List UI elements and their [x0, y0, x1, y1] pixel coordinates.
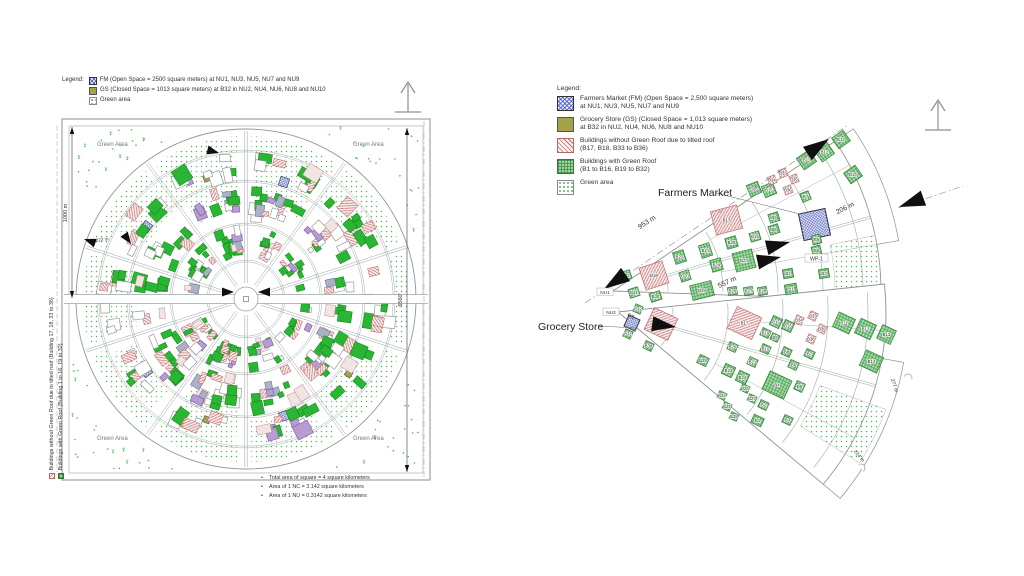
north-arrow-icon	[925, 100, 951, 130]
center-hub	[234, 287, 258, 311]
dim-arrow-large	[896, 191, 926, 215]
building-label: B27	[748, 396, 756, 401]
green-dot	[394, 158, 396, 160]
green-dot	[107, 448, 109, 450]
green-dot	[414, 462, 416, 464]
building-label: B21	[749, 360, 757, 365]
dim-break-symbol	[904, 373, 913, 379]
building-label: B1	[755, 418, 761, 423]
building-label: B21	[702, 248, 710, 253]
building	[132, 311, 145, 320]
legend-line: at NU1, NU3, NU5, NU7 and NU9	[580, 103, 753, 111]
dim-6560ft: 6560'	[398, 293, 404, 306]
green-dot	[379, 421, 381, 423]
green-dot	[171, 468, 173, 470]
building-label: B28	[730, 414, 738, 419]
legend-text: Green area	[580, 179, 613, 187]
green-dot	[119, 468, 121, 470]
building	[159, 308, 166, 319]
building-label: B20	[729, 345, 737, 350]
green-dot	[95, 425, 97, 427]
building-label: B24	[713, 263, 721, 268]
legend-label: GS (Closed Space = 1013 square meters) a…	[100, 86, 326, 95]
building-label: B10	[762, 347, 770, 352]
building-label: B9	[772, 335, 778, 340]
green-dot	[399, 175, 401, 177]
building-label: B31	[630, 290, 638, 295]
tilted-roof-hatch	[324, 287, 334, 294]
building-label: B27	[745, 289, 753, 294]
green-dot	[88, 170, 90, 172]
gs-swatch	[89, 87, 97, 95]
building-outline	[101, 303, 110, 313]
building-label: B15	[784, 324, 792, 329]
green-dot	[403, 452, 405, 454]
legend-line: (B17, B18, B33 to B36)	[580, 145, 715, 153]
green-dot	[75, 454, 77, 456]
left-side-legend: Buildings without Green Roof due to tilt…	[47, 297, 65, 479]
building-label: B17	[741, 321, 749, 326]
building	[184, 285, 191, 290]
fm-swatch	[557, 96, 574, 111]
building-label: B4	[774, 383, 780, 388]
building-label: B35	[818, 327, 826, 332]
green-roof-building	[381, 303, 388, 312]
building-label: B6	[814, 248, 820, 253]
green-area-label: Green Area	[353, 142, 384, 148]
building	[184, 285, 191, 290]
green-roof-building	[334, 277, 345, 289]
building-label: B16	[772, 320, 780, 325]
building-label: B6	[791, 363, 797, 368]
building	[159, 308, 166, 319]
building-label: B23	[740, 258, 748, 263]
legend-text: Grocery Store (GS) (Closed Space = 1,013…	[580, 116, 752, 132]
green-roof-building	[300, 303, 310, 312]
building	[254, 160, 266, 172]
green-dot	[393, 450, 395, 452]
building-label: B2	[785, 271, 791, 276]
green-dot	[118, 130, 120, 132]
green-roof-swatch	[58, 473, 64, 479]
building	[334, 277, 345, 289]
building	[101, 303, 110, 313]
building	[324, 287, 334, 294]
building-label: B7	[807, 352, 813, 357]
building	[265, 381, 273, 390]
green-dot	[77, 456, 79, 458]
building-label: B8	[784, 350, 790, 355]
green-dot	[112, 148, 114, 150]
green-dot	[148, 467, 150, 469]
green-dot	[78, 171, 80, 173]
wp1-label: WP-1	[810, 257, 823, 263]
building	[337, 310, 352, 323]
side-legend-label: Buildings without Green Roof due to tilt…	[49, 297, 55, 470]
right-legend: Legend:Farmers Market (FM) (Open Space =…	[557, 85, 829, 199]
legend-line: Buildings without Green Roof due to tilt…	[580, 137, 715, 145]
green-dot	[404, 428, 406, 430]
green-dot	[110, 134, 112, 136]
green-dot	[161, 141, 163, 143]
building-label: B5	[797, 384, 803, 389]
green-dot	[72, 415, 74, 417]
building-label: B26	[741, 386, 749, 391]
green-dots-swatch	[557, 180, 574, 195]
building	[222, 191, 231, 197]
building-label: B12	[862, 327, 870, 332]
green-dot	[412, 432, 414, 434]
green-dot	[119, 156, 121, 158]
north-arrow-icon	[395, 82, 421, 112]
green-dot	[86, 181, 88, 183]
green-dot	[123, 450, 125, 452]
building-label: B26	[729, 289, 737, 294]
green-dot	[408, 405, 410, 407]
no-green-roof-swatch	[49, 473, 55, 479]
green-dot	[105, 170, 107, 172]
green-roof-building	[248, 362, 258, 373]
green-dot	[408, 384, 410, 386]
green-dot	[388, 128, 390, 130]
green-dot	[415, 214, 417, 216]
side-legend-item: Buildings without Green Roof due to tilt…	[47, 297, 56, 479]
nu2-label: NU2	[606, 310, 616, 316]
legend-text: Buildings without Green Roof due to tilt…	[580, 137, 715, 153]
green-dot	[143, 450, 145, 452]
green-dot	[393, 437, 395, 439]
building-label: B11	[840, 321, 848, 326]
nu1-label: NU1	[600, 290, 610, 296]
dim-1000m: 1000 m	[63, 203, 69, 222]
green-dot	[78, 157, 80, 159]
tilted-roof-hatch	[274, 416, 282, 423]
building	[274, 416, 282, 423]
green-dot	[356, 158, 358, 160]
building-label: B5	[814, 237, 820, 242]
building-label: B13	[837, 137, 845, 142]
green-dot	[410, 189, 412, 191]
green-dot	[84, 146, 86, 148]
legend-item: Grocery Store (GS) (Closed Space = 1,013…	[557, 116, 829, 132]
building-label: B33	[809, 314, 817, 319]
green-dot	[74, 439, 76, 441]
green-dot	[75, 380, 77, 382]
building-label: B29	[698, 288, 706, 293]
green-dot	[329, 134, 331, 136]
green-dot	[408, 456, 410, 458]
green-dot	[92, 161, 94, 163]
green-dot	[112, 452, 114, 454]
green-roof-building	[228, 196, 240, 205]
green-dot	[413, 230, 415, 232]
circular-city-plan: Green AreaGreen AreaGreen AreaGreen Area…	[57, 82, 430, 480]
gs-swatch	[557, 117, 574, 132]
note-line: Area of 1 NU = 0.3142 square kilometers	[258, 492, 370, 501]
legend-item: Green area	[557, 179, 829, 195]
green-dot	[77, 370, 79, 372]
building-label: B3	[821, 271, 827, 276]
green-dot	[370, 161, 372, 163]
green-dot	[404, 405, 406, 407]
screenshot-root: Green AreaGreen AreaGreen AreaGreen Area…	[0, 0, 1024, 576]
building-label: B9	[771, 215, 777, 220]
building-label: B18	[650, 273, 658, 278]
building-label: B8	[771, 227, 777, 232]
green-dot	[93, 452, 95, 454]
green-dot	[98, 161, 100, 163]
legend-line: (B1 to B16, B19 to B32)	[580, 166, 656, 174]
green-dot	[113, 468, 115, 470]
building-label: B14	[849, 172, 857, 177]
building-label: B19	[762, 331, 770, 336]
building-label: B2	[761, 403, 767, 408]
green-dot	[76, 417, 78, 419]
green-roof-swatch	[557, 159, 574, 174]
green-dot	[135, 144, 137, 146]
green-roof-building	[251, 187, 262, 197]
note-line: Area of 1 NC = 3.142 square kilometers	[258, 483, 370, 492]
building-label: B28	[759, 289, 767, 294]
building	[232, 206, 240, 213]
building-label: B1	[788, 287, 794, 292]
green-dot	[127, 159, 129, 161]
building-label: B3	[785, 418, 791, 423]
green-dot	[414, 390, 416, 392]
building-label: B31	[624, 332, 632, 337]
green-dot	[148, 460, 150, 462]
green-roof-building	[227, 385, 237, 396]
building	[266, 389, 274, 397]
building	[251, 187, 262, 197]
building	[251, 393, 260, 402]
green-dot	[86, 185, 88, 187]
green-dot	[411, 190, 413, 192]
building	[99, 283, 108, 291]
building-label: B34	[795, 318, 803, 323]
building-label: B25	[723, 404, 731, 409]
building-label: B22	[718, 393, 726, 398]
dimension-label: 953 m	[637, 214, 657, 231]
building-label: B25	[728, 240, 736, 245]
green-roof-building	[337, 310, 352, 323]
legend-text: Buildings with Green Roof(B1 to B16, B19…	[580, 158, 656, 174]
green-dot	[143, 140, 145, 142]
building-label: B24	[739, 375, 747, 380]
legend-item: Buildings without Green Roof due to tilt…	[557, 137, 829, 153]
green-dot	[417, 140, 419, 142]
building-label: B20	[681, 274, 689, 279]
green-dot	[143, 138, 145, 140]
green-dot	[418, 187, 420, 189]
green-area-label: Green Area	[97, 436, 128, 442]
green-dots-swatch	[89, 97, 97, 105]
legend-line: at B32 in NU2, NU4, NU6, NU8 and NU10	[580, 124, 752, 132]
grocery-store-callout: Grocery Store	[538, 321, 604, 333]
green-dot	[101, 139, 103, 141]
building-label: B30	[645, 344, 653, 349]
green-dot	[131, 129, 133, 131]
legend-item: Farmers Market (FM) (Open Space = 2,500 …	[557, 95, 829, 111]
green-dot	[411, 135, 413, 137]
building	[248, 362, 258, 373]
green-dot	[336, 466, 338, 468]
tilted-roof-hatch	[262, 211, 269, 216]
building	[227, 385, 237, 396]
green-dot	[73, 364, 75, 366]
legend-item: Green area	[62, 96, 326, 105]
building-label: B14	[868, 359, 876, 364]
green-dot	[375, 162, 377, 164]
building	[219, 154, 230, 161]
building-outline	[219, 154, 230, 161]
side-legend-label: Buildings with Green Roof (Building 1 to…	[58, 343, 64, 470]
legend-item: Legend:FM (Open Space = 2500 square mete…	[62, 76, 326, 85]
green-dot	[139, 462, 141, 464]
building	[325, 304, 336, 316]
building	[262, 211, 269, 216]
building	[118, 270, 126, 280]
building	[346, 282, 354, 292]
legend-line: Grocery Store (GS) (Closed Space = 1,013…	[580, 116, 752, 124]
green-dot	[387, 446, 389, 448]
building	[325, 304, 336, 316]
green-dot	[126, 462, 128, 464]
green-dot	[375, 429, 377, 431]
building-outline	[116, 281, 132, 293]
building-label: B30	[652, 294, 660, 299]
green-dot	[132, 140, 134, 142]
green-dot	[377, 420, 379, 422]
green-dot	[340, 128, 342, 130]
legend-line: Buildings with Green Roof	[580, 158, 656, 166]
building	[265, 381, 273, 390]
area-notes: Total area of square = 4 square kilomete…	[258, 474, 370, 502]
left-legend: Legend:FM (Open Space = 2500 square mete…	[62, 76, 326, 106]
legend-line: Green area	[580, 179, 613, 187]
tilted-roof-hatch	[99, 283, 108, 291]
green-dot	[379, 158, 381, 160]
building-outline	[346, 282, 354, 292]
building-label: B32	[634, 307, 642, 312]
legend-title: Legend:	[62, 76, 84, 85]
building-label: B22	[676, 255, 684, 260]
green-dot	[411, 419, 413, 421]
green-dot	[86, 385, 88, 387]
building	[381, 303, 388, 312]
green-roof-building	[118, 270, 126, 280]
building	[228, 351, 237, 362]
legend-label: Green area	[100, 96, 130, 105]
green-dot	[417, 432, 419, 434]
legend-line: Farmers Market (FM) (Open Space = 2,500 …	[580, 95, 753, 103]
building	[300, 303, 310, 312]
building-label: B23	[725, 368, 733, 373]
building	[222, 191, 231, 197]
building	[116, 281, 132, 293]
green-dot	[94, 429, 96, 431]
building-label: B13	[883, 332, 891, 337]
building-label: B17	[723, 218, 731, 223]
legend-text: Farmers Market (FM) (Open Space = 2,500 …	[580, 95, 753, 111]
legend-item: GS (Closed Space = 1013 square meters) a…	[62, 86, 326, 95]
green-dot	[363, 462, 365, 464]
building	[232, 206, 240, 213]
green-area-label: Green Area	[353, 436, 384, 442]
building-outline	[254, 160, 266, 172]
green-dot	[368, 158, 370, 160]
note-line: Total area of square = 4 square kilomete…	[258, 474, 370, 483]
legend-item: Buildings with Green Roof(B1 to B16, B19…	[557, 158, 829, 174]
green-roof-building	[251, 393, 260, 402]
building-label: B29	[699, 358, 707, 363]
green-area-label: Green Area	[97, 142, 128, 148]
legend-label: FM (Open Space = 2500 square meters) at …	[100, 76, 300, 85]
no-green-roof-swatch	[557, 138, 574, 153]
building-outline	[132, 311, 145, 320]
green-dot	[73, 370, 75, 372]
green-dot	[95, 186, 97, 188]
side-legend-item: Buildings with Green Roof (Building 1 to…	[56, 297, 65, 479]
building	[228, 196, 240, 205]
fm-swatch	[89, 77, 97, 85]
building-label: B19	[751, 234, 759, 239]
building-label: B36	[807, 337, 815, 342]
legend-title: Legend:	[557, 85, 829, 93]
building	[266, 389, 274, 397]
